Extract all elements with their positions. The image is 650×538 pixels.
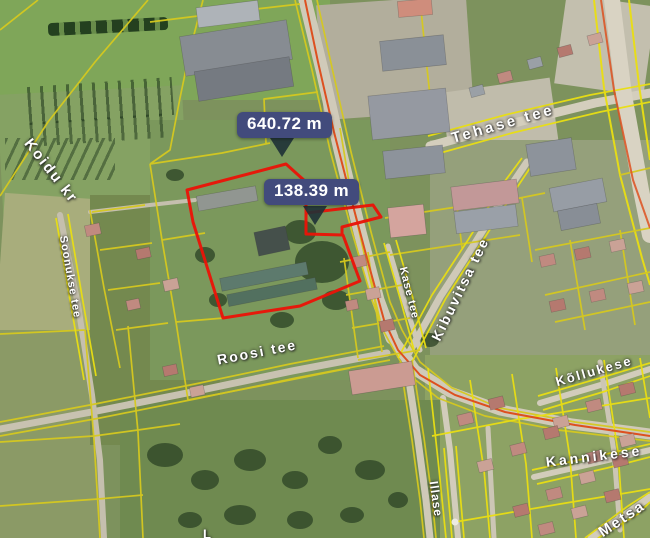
measurement-label-total: 640.72 m: [237, 112, 332, 138]
measure-pointer-icon: [303, 206, 327, 225]
measurement-label-segment: 138.39 m: [264, 179, 359, 205]
measure-pointer-icon: [270, 138, 294, 157]
satellite-map-canvas[interactable]: Tehase tee Kibuvitsa tee Kase tee Roosi …: [0, 0, 650, 538]
map-vector-overlay: [0, 0, 650, 538]
